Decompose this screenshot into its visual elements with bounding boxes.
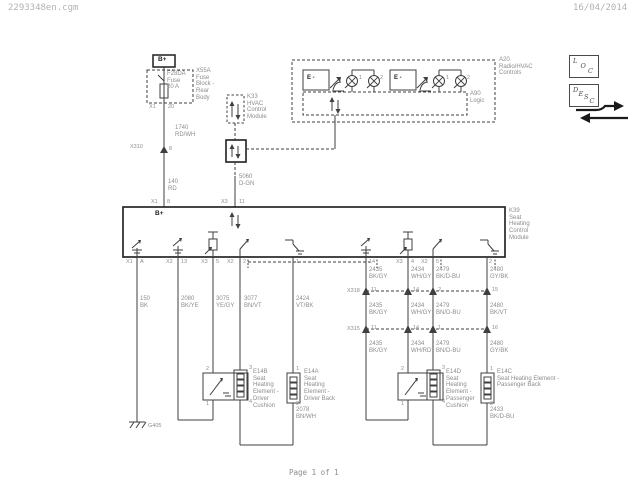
k39-pin-num: A bbox=[140, 259, 144, 265]
wire-2080-label: 2080 BK/YE bbox=[181, 296, 199, 309]
x315-connector-row bbox=[362, 325, 491, 333]
wire-1740-label: 1740 RD/WH bbox=[175, 125, 195, 138]
wire-3075-label: 3075 YE/GY bbox=[216, 296, 234, 309]
ground-g405-label: G405 bbox=[148, 423, 161, 429]
wire-2435-label: 2435 BK/GY bbox=[369, 267, 387, 280]
e14a-pin-top: 1 bbox=[296, 366, 299, 372]
wire-140-label: 140 RD bbox=[168, 179, 178, 192]
wire-2424-label: 2424 VT/BK bbox=[296, 296, 313, 309]
switch1-label: E - bbox=[307, 75, 315, 82]
fuse-block-label: X55A Fuse Block - Rear Body bbox=[196, 68, 214, 102]
e14d-heat-top: 3 bbox=[442, 365, 445, 371]
e14a-label: E14A Seat Heating Element - Driver Back bbox=[304, 369, 335, 403]
k39-pin-num: 1 bbox=[296, 259, 299, 265]
e14d-label: E14D Seat Heating Element - Passenger Cu… bbox=[446, 369, 475, 409]
wire-150-label: 150 BK bbox=[140, 296, 150, 309]
serial-data-gateway bbox=[226, 115, 335, 207]
fuse-label: F28DA Fuse 20 A bbox=[167, 71, 186, 91]
wire-2434-label: 2434 WH/GY bbox=[411, 303, 431, 316]
k39-bplus-label: B+ bbox=[155, 210, 164, 217]
wiring-diagram-canvas bbox=[0, 0, 640, 480]
k39-pin-num: 13 bbox=[181, 259, 187, 265]
wire-5060-label: 5060 D-GN bbox=[239, 174, 254, 187]
k39-pin-num: 2 bbox=[489, 259, 492, 265]
wire-2480-label: 2480 BK/VT bbox=[490, 303, 507, 316]
e14d-pin-top: 2 bbox=[401, 366, 404, 372]
wire-2479-label: 2479 BN/D-BU bbox=[436, 341, 461, 354]
k39-pin-conn: X1 bbox=[126, 259, 133, 265]
k39-top-pin2-num: 11 bbox=[239, 199, 245, 205]
wire-2479-label: 2479 BK/D-BU bbox=[436, 267, 460, 280]
x315-pin: 14 bbox=[413, 325, 419, 331]
wire-2479-label: 2479 BN/D-BU bbox=[436, 303, 461, 316]
lamp-num: 1 bbox=[446, 75, 449, 81]
k39-pin-conn: X2 bbox=[421, 259, 428, 265]
x315-pin: 16 bbox=[492, 325, 498, 331]
file-name: 2293348en.cgm bbox=[8, 3, 78, 13]
page-indicator: Page 1 of 1 bbox=[289, 468, 339, 477]
e14b-label: E14B Seat Heating Element - Driver Cushi… bbox=[253, 369, 279, 409]
a20-label: A20 Radio/HVAC Controls bbox=[499, 57, 533, 77]
x318-label: X318 bbox=[347, 288, 360, 294]
e14d-pin-bottom: 1 bbox=[401, 401, 404, 407]
x310-pin: 8 bbox=[169, 146, 172, 152]
k33-label: K33 HVAC Control Module bbox=[247, 94, 267, 121]
x318-pin: 14 bbox=[413, 287, 419, 293]
date-stamp: 16/04/2014 bbox=[573, 3, 627, 13]
fuse-pin-number: 20 bbox=[168, 104, 174, 110]
wire-2480-label: 2480 GY/BK bbox=[490, 267, 508, 280]
lamp-num: 2 bbox=[467, 75, 470, 81]
wire-2435-label: 2435 BK/GY bbox=[369, 341, 387, 354]
cgm-viewer-page: 2293348en.cgm 16/04/2014 Page 1 of 1 LOC… bbox=[0, 0, 640, 480]
switch2-label: E - bbox=[394, 75, 402, 82]
x310-label: X310 bbox=[130, 144, 143, 150]
x318-pin: 2 bbox=[438, 287, 441, 293]
k39-pin-num: 5 bbox=[216, 259, 219, 265]
k33-hvac-control-module-box bbox=[227, 95, 244, 140]
x315-pin: 11 bbox=[371, 325, 377, 331]
wire-2434-label: 2434 WH/GY bbox=[411, 267, 431, 280]
bplus-label: B+ bbox=[158, 56, 167, 63]
lamp-num: 2 bbox=[380, 75, 383, 81]
k39-top-pin1-num: 8 bbox=[167, 199, 170, 205]
k39-pin-conn: X2 bbox=[166, 259, 173, 265]
left-wire-runs bbox=[137, 257, 293, 445]
e14b-heat-top: 3 bbox=[249, 365, 252, 371]
k39-label: K39 Seat Heating Control Module bbox=[509, 208, 530, 242]
wire-2434-label: 2434 WH/RD bbox=[411, 341, 431, 354]
ground-g405 bbox=[129, 422, 146, 428]
a90-logic-label: A90 Logic bbox=[470, 91, 484, 104]
x318-connector-row bbox=[362, 287, 491, 295]
x318-pin: 11 bbox=[371, 287, 377, 293]
e14d-heat-bottom: 4 bbox=[442, 399, 445, 405]
wire-2435-label: 2435 BK/GY bbox=[369, 303, 387, 316]
x310-connector-arrow bbox=[160, 146, 168, 153]
k39-pin-num: 4 bbox=[411, 259, 414, 265]
x315-label: X315 bbox=[347, 326, 360, 332]
k39-pin-num: 14 bbox=[369, 259, 375, 265]
lamp-num: 1 bbox=[359, 75, 362, 81]
x315-pin: 1 bbox=[438, 325, 441, 331]
wire-2433-label: 2433 BK/D-BU bbox=[490, 407, 514, 420]
k39-pin-conn: X3 bbox=[396, 259, 403, 265]
k39-pin-num: 2 bbox=[243, 259, 246, 265]
k39-top-pin1-conn: X1 bbox=[151, 199, 158, 205]
a20-radio-hvac-controls-box bbox=[292, 60, 495, 122]
wire-2480-label: 2480 GY/BK bbox=[490, 341, 508, 354]
e14b-heat-bottom: 4 bbox=[249, 399, 252, 405]
k39-pin-conn: X2 bbox=[227, 259, 234, 265]
k39-pin-conn: X3 bbox=[201, 259, 208, 265]
e14b-pin-top: 2 bbox=[206, 366, 209, 372]
e14b-pin-bottom: 1 bbox=[206, 401, 209, 407]
trace-arrows-icon[interactable] bbox=[570, 98, 638, 128]
loc-button[interactable]: LOC bbox=[569, 55, 599, 78]
fuse-pin-connector: X1 bbox=[149, 104, 156, 110]
e14c-pin-top: 1 bbox=[490, 366, 493, 372]
wire-2078-label: 2078 BN/WH bbox=[296, 407, 316, 420]
x318-pin: 15 bbox=[492, 287, 498, 293]
wire-3077-label: 3077 BN/VT bbox=[244, 296, 262, 309]
k39-top-pin2-conn: X3 bbox=[221, 199, 228, 205]
e14c-label: E14C Seat Heating Element - Passenger Ba… bbox=[497, 369, 559, 389]
k39-pin-num: 5 bbox=[436, 259, 439, 265]
